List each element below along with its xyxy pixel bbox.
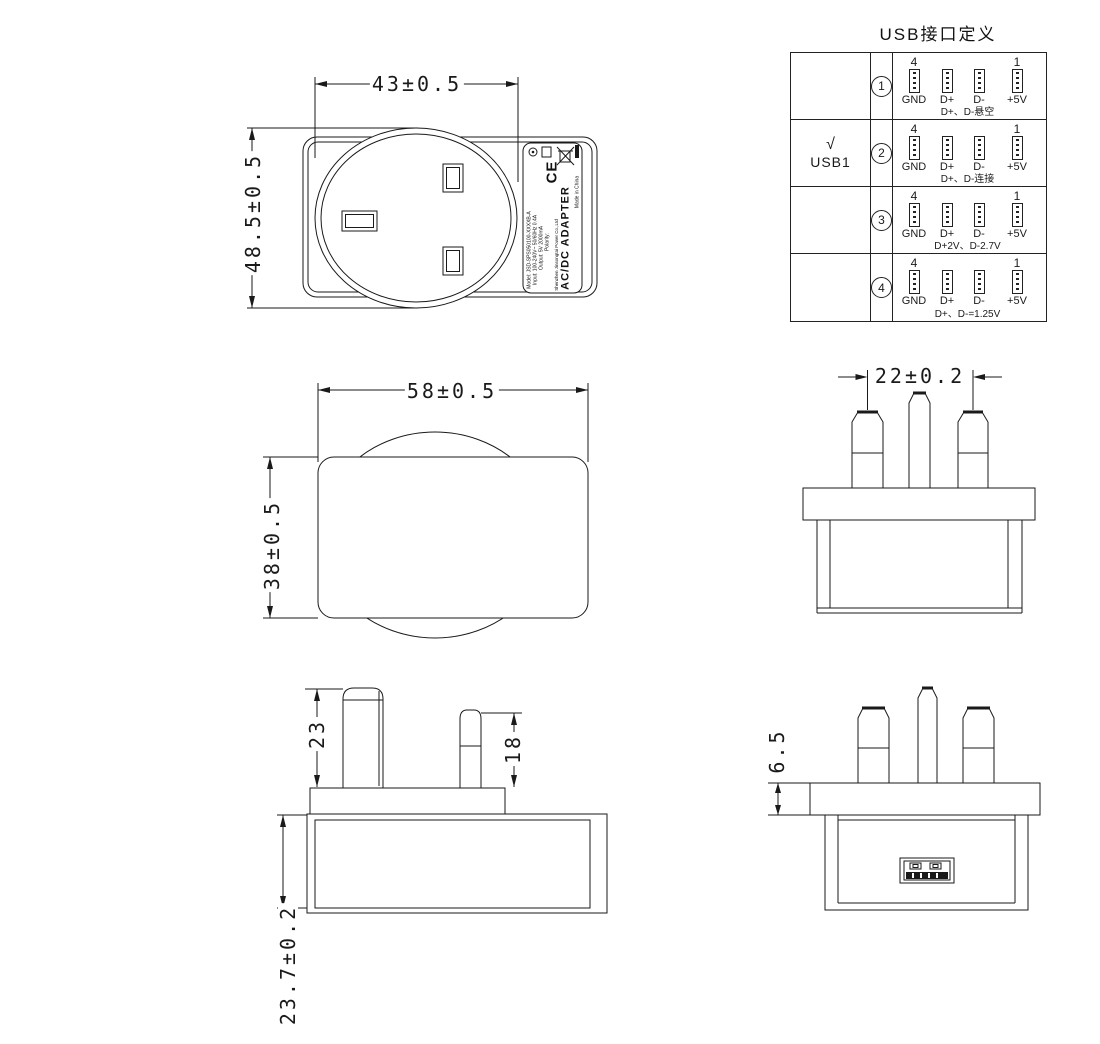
pin-slot-left bbox=[342, 211, 377, 231]
top-view bbox=[318, 432, 588, 638]
pin-symbol-icon bbox=[974, 270, 985, 294]
pin-dminus: D- bbox=[965, 123, 993, 173]
neutral-pin-bottom bbox=[963, 708, 994, 783]
dim-pin-spacing: 22±0.2 bbox=[873, 366, 967, 386]
dim-power-pin-length: 18 bbox=[503, 732, 523, 766]
port-select-cell-2: √ USB1 bbox=[791, 120, 871, 187]
circled-number: 3 bbox=[871, 210, 892, 231]
pin-symbol-icon bbox=[909, 270, 920, 294]
plug-platform bbox=[310, 788, 505, 814]
side-view bbox=[307, 688, 607, 913]
body-outline bbox=[307, 814, 607, 913]
black-bar-icon bbox=[575, 145, 579, 158]
label-polarity-line: Polarity: bbox=[546, 233, 551, 251]
pin-gnd: 4 GND bbox=[897, 123, 931, 173]
pin-symbol-icon bbox=[974, 69, 985, 93]
dim-flange-thickness: 6.5 bbox=[767, 726, 787, 775]
pin-symbol-icon bbox=[1012, 136, 1023, 160]
neutral-pin bbox=[958, 412, 988, 488]
pin-symbol-icon bbox=[1012, 69, 1023, 93]
power-pin-side bbox=[460, 710, 481, 788]
pin-5v: 1 +5V bbox=[997, 190, 1037, 240]
pin-symbol-icon bbox=[974, 203, 985, 227]
live-pin bbox=[852, 412, 883, 488]
mode-number-cell-1: 1 bbox=[871, 53, 893, 120]
pin-gnd: 4 GND bbox=[897, 56, 931, 106]
port-select-cell-3 bbox=[791, 187, 871, 254]
mode-note: D+2V、D-2.7V bbox=[893, 237, 1042, 252]
pin-dplus: D+ bbox=[933, 123, 961, 173]
technical-drawing-page: 43±0.5 48.5±0.5 58±0.5 38±0.5 22±0.2 23 … bbox=[0, 0, 1100, 1044]
pin-symbol-icon bbox=[1012, 203, 1023, 227]
pin-5v: 1 +5V bbox=[997, 56, 1037, 106]
pin-5v: 1 +5V bbox=[997, 257, 1037, 307]
pin-dminus: D- bbox=[965, 190, 993, 240]
pin-symbol-icon bbox=[942, 69, 953, 93]
pinout-cell-4: 4 GND D+ D- 1 +5V D+、D-=1.25V bbox=[893, 254, 1046, 321]
pin-symbol-icon bbox=[909, 203, 920, 227]
earth-pin-bottom bbox=[918, 688, 937, 783]
body-outline bbox=[318, 457, 588, 618]
flange bbox=[803, 488, 1035, 520]
pin-gnd: 4 GND bbox=[897, 190, 931, 240]
dim-earth-pin-length: 23 bbox=[307, 717, 327, 751]
dim-face-width: 43±0.5 bbox=[370, 74, 464, 94]
pin-symbol-icon bbox=[942, 203, 953, 227]
check-mark: √ bbox=[826, 137, 835, 153]
mode-number-cell-2: 2 bbox=[871, 120, 893, 187]
usb-definition-table: 1 4 GND D+ D- 1 +5V D+、D-悬 bbox=[790, 52, 1047, 322]
ce-mark: CE bbox=[545, 161, 560, 184]
pinout-cell-1: 4 GND D+ D- 1 +5V D+、D-悬空 bbox=[893, 53, 1046, 120]
front-view bbox=[803, 393, 1035, 613]
pin-slot-bottom bbox=[443, 247, 463, 275]
dim-face-height: 48.5±0.5 bbox=[243, 151, 263, 275]
pin-slot-top bbox=[443, 164, 463, 192]
earth-pin bbox=[909, 393, 930, 488]
circled-number: 4 bbox=[871, 277, 892, 298]
mode-number-cell-3: 3 bbox=[871, 187, 893, 254]
pin-symbol-icon bbox=[909, 69, 920, 93]
pin-dminus: D- bbox=[965, 257, 993, 307]
dim-body-depth: 23.7±0.2 bbox=[278, 903, 298, 1027]
mode-note: D+、D-悬空 bbox=[893, 103, 1042, 118]
pin-dminus: D- bbox=[965, 56, 993, 106]
usb-table-title: USB接口定义 bbox=[790, 20, 1086, 45]
mode-number-cell-4: 4 bbox=[871, 254, 893, 321]
label-product-name: AC/DC ADAPTER bbox=[561, 186, 572, 290]
usb-port bbox=[900, 858, 954, 883]
pin-number-1: 1 bbox=[997, 56, 1037, 69]
earth-pin-side bbox=[343, 688, 383, 788]
port-select-cell-1 bbox=[791, 53, 871, 120]
pin-5v: 1 +5V bbox=[997, 123, 1037, 173]
dim-body-width: 58±0.5 bbox=[405, 381, 499, 401]
pinout-cell-3: 4 GND D+ D- 1 +5V D+2V、D-2.7V bbox=[893, 187, 1046, 254]
pin-symbol-icon bbox=[909, 136, 920, 160]
label-origin: Made in China bbox=[576, 176, 581, 208]
pin-gnd: 4 GND bbox=[897, 257, 931, 307]
label-maker-line: Shenzhen Jinsongtai Power Co.,Ltd bbox=[555, 219, 560, 291]
pin-dplus: D+ bbox=[933, 56, 961, 106]
usb1-label: USB1 bbox=[810, 154, 851, 170]
circled-number: 1 bbox=[871, 76, 892, 97]
mode-note: D+、D-连接 bbox=[893, 170, 1042, 185]
circled-number: 2 bbox=[871, 143, 892, 164]
body bbox=[817, 520, 1022, 613]
pin-symbol-icon bbox=[942, 270, 953, 294]
live-pin-bottom bbox=[858, 708, 889, 783]
pin-symbol-icon bbox=[942, 136, 953, 160]
pin-symbol-icon bbox=[1012, 270, 1023, 294]
mode-note: D+、D-=1.25V bbox=[893, 305, 1042, 320]
pin-dplus: D+ bbox=[933, 190, 961, 240]
dim-body-height: 38±0.5 bbox=[262, 498, 282, 592]
bottom-view bbox=[810, 688, 1040, 910]
flange bbox=[810, 783, 1040, 815]
port-select-cell-4 bbox=[791, 254, 871, 321]
pin-symbol-icon bbox=[974, 136, 985, 160]
pin-dplus: D+ bbox=[933, 257, 961, 307]
pin-number-4: 4 bbox=[897, 56, 931, 69]
pinout-cell-2: 4 GND D+ D- 1 +5V D+、D-连接 bbox=[893, 120, 1046, 187]
